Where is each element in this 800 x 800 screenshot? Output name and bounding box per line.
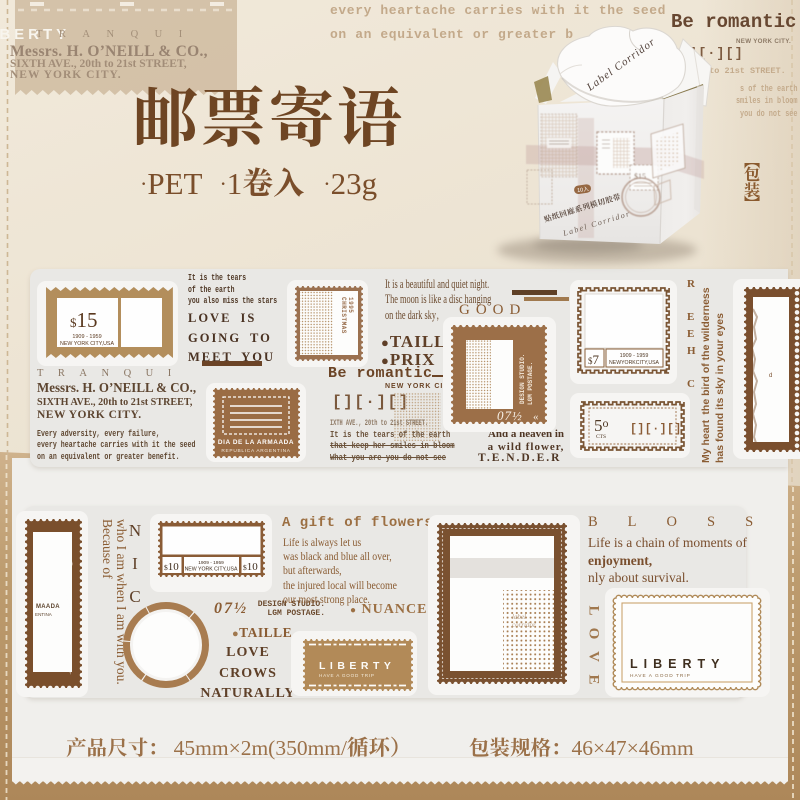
svg-text:[][·][]: [][·][]	[630, 423, 682, 436]
svg-text:LGM POSTAGE.: LGM POSTAGE.	[527, 362, 534, 405]
svg-text:$15: $15	[634, 172, 646, 181]
svg-text:d: d	[769, 373, 772, 379]
svg-text:REPUBLICA ARGENTINA: REPUBLICA ARGENTINA	[221, 448, 290, 454]
svg-text:$10: $10	[164, 561, 179, 573]
svg-text:LIBERTY: LIBERTY	[319, 660, 395, 672]
svg-text:1995: 1995	[347, 297, 354, 313]
svg-text:ENTINA: ENTINA	[35, 612, 53, 617]
svg-text:1909 - 1959: 1909 - 1959	[620, 353, 649, 359]
svg-text:label: label	[512, 613, 526, 621]
svg-text:«: «	[533, 411, 539, 423]
svg-text:1909 - 1959: 1909 - 1959	[72, 334, 101, 340]
svg-text:CTS: CTS	[596, 434, 606, 440]
svg-text:LIBERTY: LIBERTY	[630, 657, 725, 671]
svg-text:MAADA: MAADA	[36, 604, 60, 610]
svg-text:DIA DE LA ARMAADA: DIA DE LA ARMAADA	[218, 439, 294, 446]
svg-text:NEWYORKCITY,USA: NEWYORKCITY,USA	[609, 360, 659, 366]
svg-text:HAVE A GOOD TRIP: HAVE A GOOD TRIP	[319, 673, 375, 678]
svg-text:5o: 5o	[594, 416, 609, 435]
svg-text:1909 - 1959: 1909 - 1959	[198, 560, 224, 566]
svg-text:corridor: corridor	[512, 621, 536, 629]
svg-text:NEW YORK CITY,USA: NEW YORK CITY,USA	[60, 341, 114, 347]
svg-text:07½: 07½	[497, 408, 523, 423]
svg-text:$10: $10	[243, 561, 258, 573]
svg-text:HAVE A GOOD TRIP: HAVE A GOOD TRIP	[630, 673, 691, 679]
svg-text:CHRISTMAS: CHRISTMAS	[340, 297, 347, 334]
svg-text:NEW YORK CITY,USA: NEW YORK CITY,USA	[185, 567, 238, 573]
svg-text:DESIGN STUDIO.: DESIGN STUDIO.	[519, 354, 526, 404]
